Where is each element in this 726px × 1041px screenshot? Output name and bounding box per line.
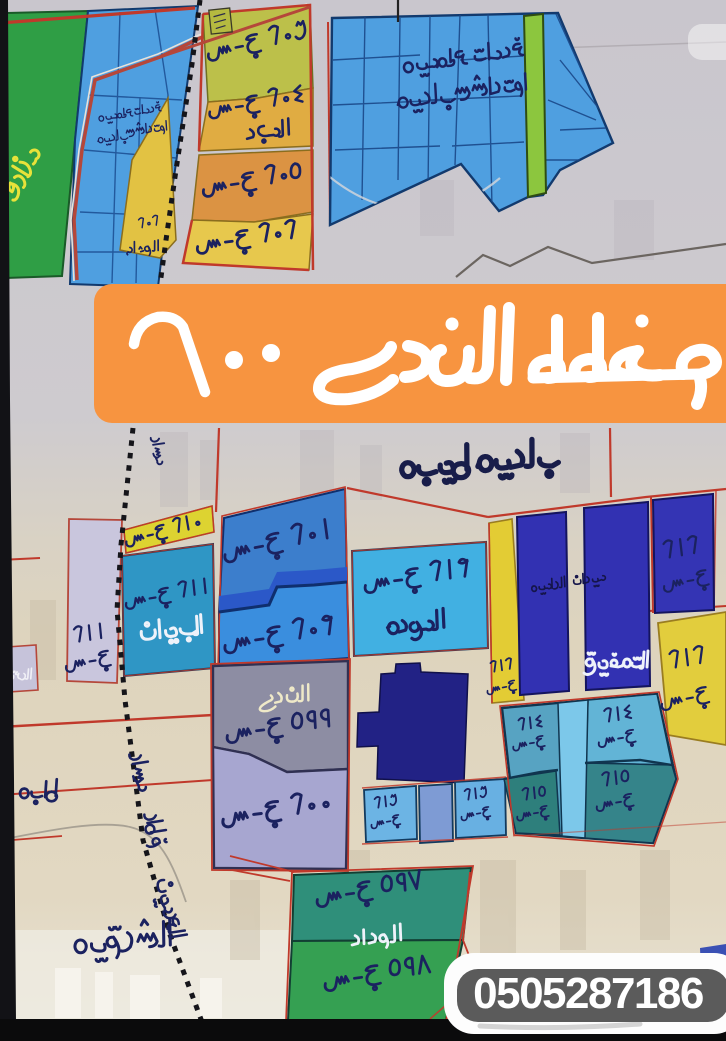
svg-text:0505287186: 0505287186 (473, 969, 703, 1018)
